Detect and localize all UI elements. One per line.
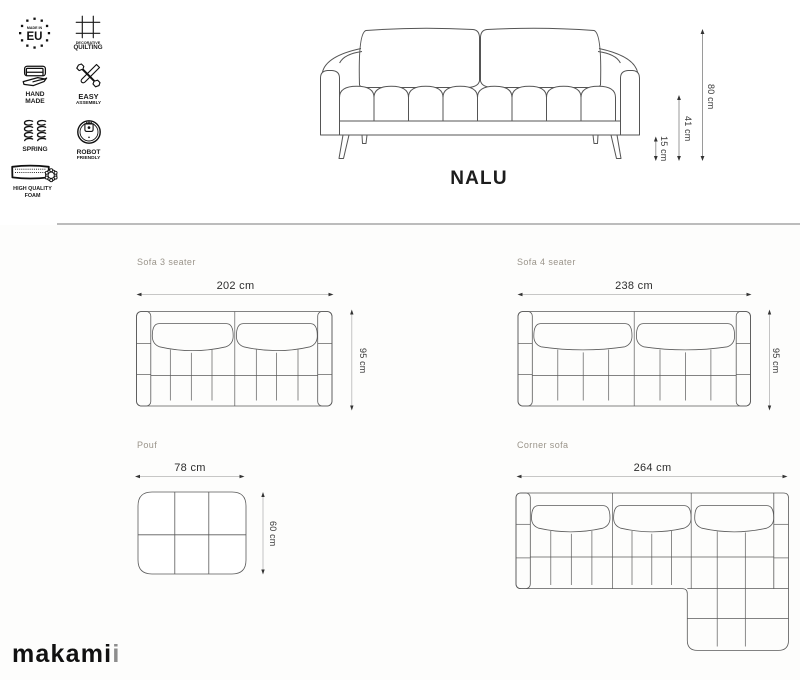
svg-text:EU: EU [27,30,43,42]
svg-text:MADE IN: MADE IN [27,26,43,30]
